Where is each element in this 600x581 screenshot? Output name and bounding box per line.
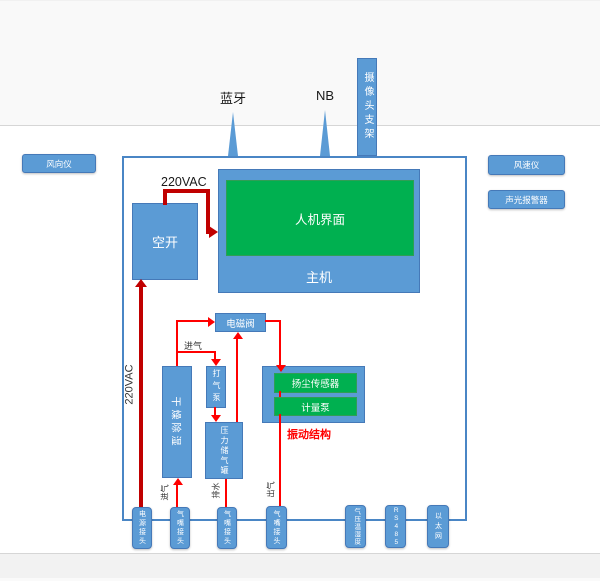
connector-air-nozzle-1-label: 气嘴接头 xyxy=(177,510,184,546)
pressure-tank-box: 压力储气罐 xyxy=(205,422,243,479)
connector-air-nozzle-3: 气嘴接头 xyxy=(266,506,287,549)
metering-pump-box: 计量泵 xyxy=(274,397,357,416)
ac-label-left: 220VAC xyxy=(124,362,137,408)
wind-speed-label-box: 风速仪 xyxy=(488,155,565,175)
air-line-down-to-sensor xyxy=(279,320,281,366)
air-arrow-into-pump xyxy=(211,359,221,366)
pressure-tank-label: 压力储气罐 xyxy=(220,426,228,476)
connector-ethernet: 以太网 xyxy=(427,505,449,548)
connector-pressure-temp-humidity: 气压温湿度 xyxy=(345,505,366,548)
air-line-to-solenoid xyxy=(176,320,209,322)
air-arrow-into-dryer xyxy=(173,478,183,485)
connector-rs485: RS485 xyxy=(385,505,406,548)
vibration-label: 振动结构 xyxy=(287,426,331,442)
wind-direction-label-box: 风向仪 xyxy=(22,154,96,173)
page-top-band xyxy=(0,0,600,126)
air-arrow-into-dust-sensor xyxy=(276,365,286,372)
connector-air-nozzle-2: 气嘴接头 xyxy=(217,507,237,549)
air-arrow-into-solenoid xyxy=(208,317,215,327)
dryer-label: 干燥除湿 xyxy=(170,396,185,448)
connector-power-label: 电源接头 xyxy=(139,510,146,546)
dust-sensor-label: 扬尘传感器 xyxy=(292,376,340,390)
sound-light-alarm-label: 声光报警器 xyxy=(505,194,548,206)
solenoid-valve-box: 电磁阀 xyxy=(215,313,266,332)
air-line-dryer-up xyxy=(176,320,178,366)
bluetooth-antenna-icon xyxy=(228,112,238,156)
air-line-intake-branch xyxy=(176,351,216,353)
host-box: 人机界面 主机 xyxy=(218,169,420,293)
power-line-top-horizontal xyxy=(163,189,210,193)
air-pump-label: 打气泵 xyxy=(212,369,220,405)
camera-mount-label: 摄像头支架 xyxy=(362,72,372,142)
drain-label: 排水 xyxy=(211,478,222,504)
connector-ethernet-label: 以太网 xyxy=(435,512,442,542)
metering-pump-label: 计量泵 xyxy=(301,400,330,414)
outlet-label: 出气 xyxy=(266,477,277,503)
wind-direction-label: 风向仪 xyxy=(46,158,72,170)
air-pump-box: 打气泵 xyxy=(206,366,226,408)
sound-light-alarm-label-box: 声光报警器 xyxy=(488,190,565,209)
hmi-label: 人机界面 xyxy=(295,209,345,228)
power-arrow-into-breaker xyxy=(135,279,147,287)
air-line-sensor-gap xyxy=(279,391,281,397)
connector-rs485-label: RS485 xyxy=(392,507,399,547)
power-line-main xyxy=(139,286,143,507)
breaker-box: 空开 xyxy=(132,203,198,280)
connector-pressure-temp-humidity-label: 气压温湿度 xyxy=(352,508,359,546)
breaker-label: 空开 xyxy=(152,232,178,251)
connector-power: 电源接头 xyxy=(132,507,152,549)
nb-label: NB xyxy=(305,88,345,103)
dust-sensor-box: 扬尘传感器 xyxy=(274,373,357,393)
page-bottom-band xyxy=(0,553,600,579)
solenoid-valve-label: 电磁阀 xyxy=(226,316,255,330)
diagram-page: 蓝牙 NB 摄像头支架 风向仪 风速仪 声光报警器 220VAC 220VAC … xyxy=(0,0,600,581)
air-line-outlet-down xyxy=(279,414,281,507)
wind-speed-label: 风速仪 xyxy=(514,159,540,171)
nb-antenna-icon xyxy=(320,110,330,156)
air-line-drain-down xyxy=(225,479,227,507)
air-line-tank-to-solenoid xyxy=(236,338,238,422)
ac-label-top: 220VAC xyxy=(161,175,207,189)
camera-mount-box: 摄像头支架 xyxy=(357,58,377,156)
power-arrow-into-host xyxy=(209,226,218,238)
air-arrow-into-tank xyxy=(211,415,221,422)
intake-bottom-label: 进气 xyxy=(160,480,171,506)
connector-air-nozzle-3-label: 气嘴接头 xyxy=(273,510,280,546)
air-arrow-into-solenoid-bottom xyxy=(233,332,243,339)
hmi-screen: 人机界面 xyxy=(226,180,414,256)
bluetooth-label: 蓝牙 xyxy=(208,88,258,107)
dryer-box: 干燥除湿 xyxy=(162,366,192,478)
connector-air-nozzle-2-label: 气嘴接头 xyxy=(224,510,231,546)
host-label: 主机 xyxy=(219,267,419,286)
connector-air-nozzle-1: 气嘴接头 xyxy=(170,507,190,549)
sensor-assembly-box: 扬尘传感器 计量泵 xyxy=(262,366,365,423)
